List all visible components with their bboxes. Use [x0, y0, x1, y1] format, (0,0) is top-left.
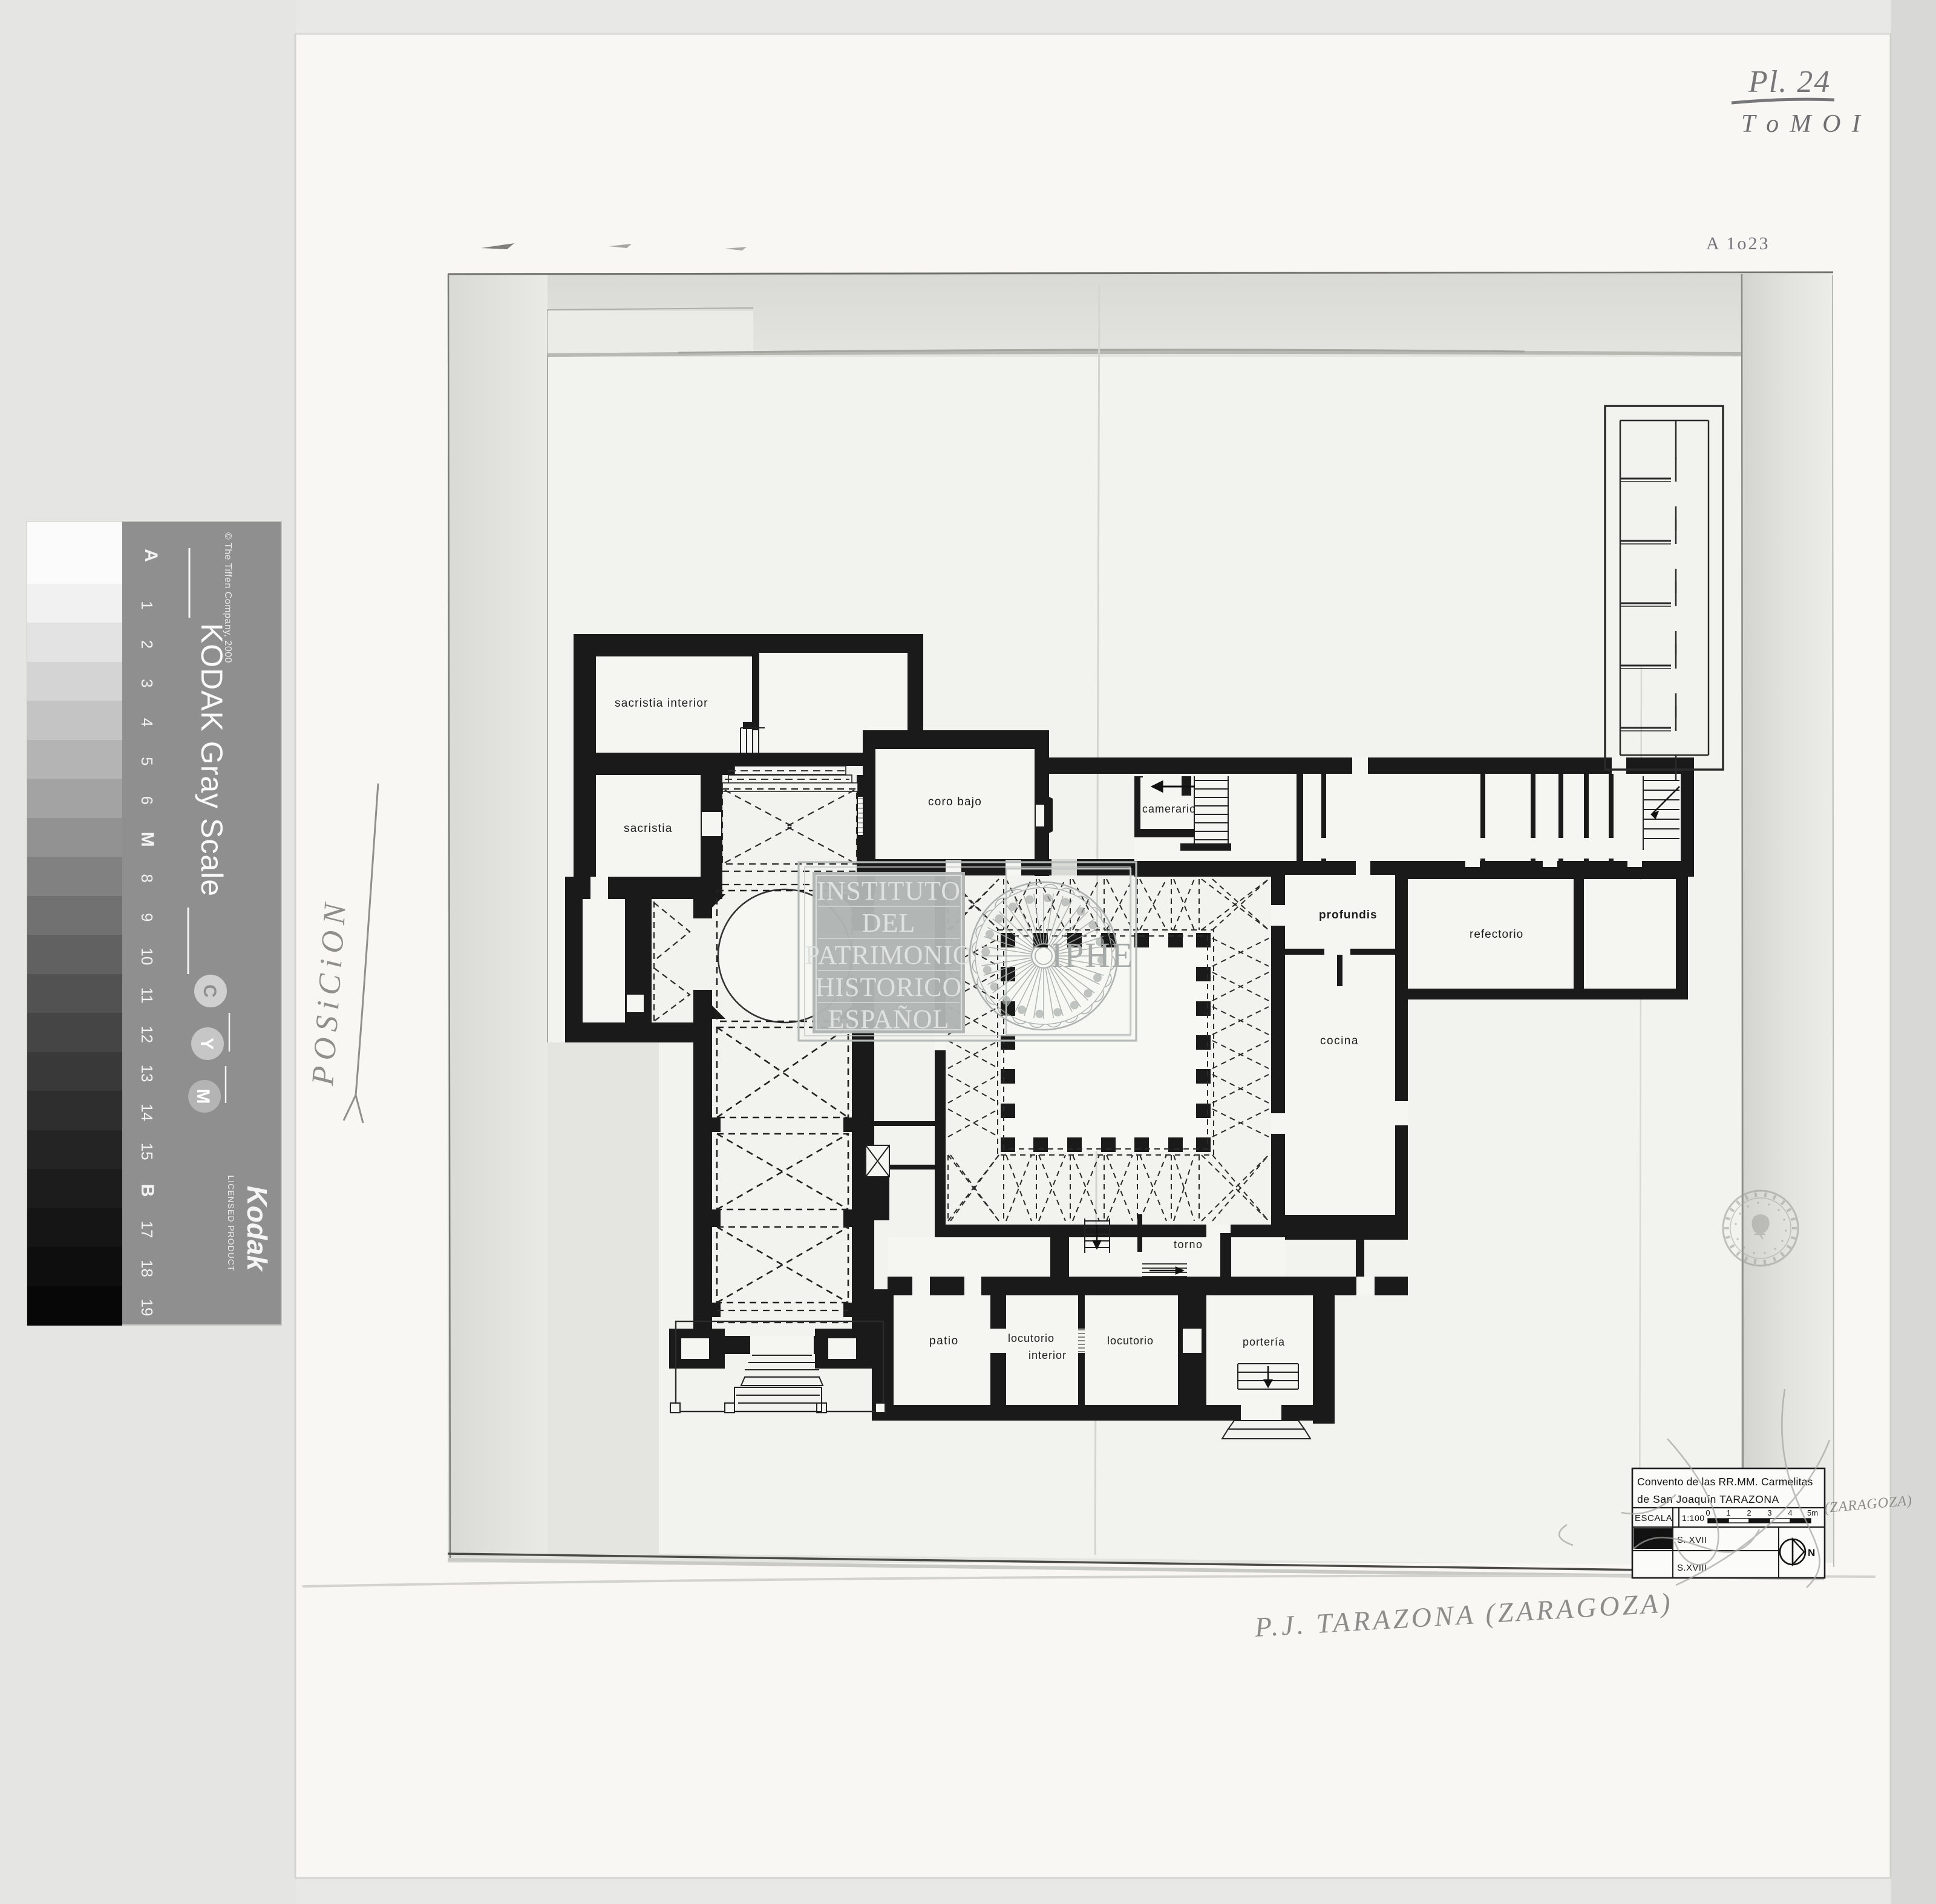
- svg-text:2: 2: [1747, 1508, 1751, 1517]
- svg-text:refectorio: refectorio: [1470, 928, 1523, 941]
- svg-text:4: 4: [138, 718, 156, 727]
- svg-text:N: N: [1808, 1547, 1815, 1559]
- svg-text:de San Joaquín TARAZONA: de San Joaquín TARAZONA: [1637, 1493, 1779, 1505]
- svg-text:HISTORICO: HISTORICO: [816, 972, 963, 1002]
- svg-text:A 1o23: A 1o23: [1706, 234, 1770, 254]
- svg-text:10: 10: [138, 947, 156, 965]
- svg-text:PATRIMONIO: PATRIMONIO: [805, 940, 972, 970]
- svg-text:LICENSED PRODUCT: LICENSED PRODUCT: [226, 1175, 236, 1271]
- svg-text:C: C: [200, 984, 220, 998]
- svg-text:coro bajo: coro bajo: [928, 796, 982, 808]
- svg-text:1: 1: [138, 601, 156, 609]
- svg-text:8: 8: [138, 874, 156, 883]
- svg-text:14: 14: [138, 1104, 156, 1121]
- svg-text:IPHE: IPHE: [1051, 935, 1134, 975]
- svg-text:© The Tiffen Company, 2000: © The Tiffen Company, 2000: [223, 532, 233, 663]
- svg-text:cocina: cocina: [1320, 1035, 1359, 1047]
- svg-text:4: 4: [1788, 1508, 1792, 1517]
- svg-text:1:100: 1:100: [1682, 1513, 1705, 1523]
- svg-text:5: 5: [138, 757, 156, 765]
- svg-text:M: M: [193, 1089, 213, 1104]
- svg-text:B: B: [137, 1184, 157, 1197]
- svg-text:Pl. 24: Pl. 24: [1748, 65, 1831, 99]
- svg-text:13: 13: [138, 1065, 156, 1082]
- svg-text:2: 2: [138, 640, 156, 649]
- svg-text:Y: Y: [197, 1038, 217, 1050]
- svg-text:1: 1: [1726, 1508, 1730, 1517]
- svg-text:A: A: [141, 549, 161, 562]
- svg-text:locutorio: locutorio: [1008, 1332, 1055, 1344]
- svg-text:INSTITUTO: INSTITUTO: [817, 876, 961, 906]
- svg-text:patio: patio: [929, 1335, 959, 1347]
- svg-text:3: 3: [1767, 1508, 1771, 1517]
- svg-text:15: 15: [138, 1143, 156, 1160]
- svg-text:6: 6: [138, 796, 156, 805]
- svg-text:T o M O I: T o M O I: [1741, 110, 1863, 138]
- svg-text:Kodak: Kodak: [241, 1186, 273, 1272]
- svg-text:ESPAÑOL: ESPAÑOL: [828, 1004, 950, 1034]
- svg-text:12: 12: [138, 1026, 156, 1043]
- svg-text:sacristia: sacristia: [624, 822, 672, 835]
- svg-text:5m: 5m: [1807, 1508, 1818, 1517]
- svg-text:19: 19: [138, 1299, 156, 1317]
- svg-text:ESCALA: ESCALA: [1635, 1513, 1672, 1523]
- svg-text:17: 17: [138, 1221, 156, 1238]
- svg-text:0: 0: [1705, 1508, 1710, 1517]
- svg-text:18: 18: [138, 1260, 156, 1277]
- svg-text:M: M: [137, 832, 157, 847]
- svg-text:locutorio: locutorio: [1107, 1335, 1154, 1347]
- svg-text:portería: portería: [1243, 1336, 1285, 1348]
- svg-text:interior: interior: [1028, 1349, 1067, 1361]
- svg-text:DEL: DEL: [862, 908, 916, 938]
- svg-text:sacristia interior: sacristia interior: [615, 697, 708, 710]
- svg-text:11: 11: [138, 987, 156, 1004]
- svg-text:9: 9: [138, 913, 156, 921]
- svg-text:torno: torno: [1174, 1238, 1203, 1251]
- svg-text:Convento de las RR.MM. Carmeli: Convento de las RR.MM. Carmelitas: [1637, 1476, 1813, 1488]
- svg-text:profundis: profundis: [1319, 909, 1378, 921]
- svg-text:3: 3: [138, 679, 156, 687]
- svg-text:camerario: camerario: [1142, 803, 1196, 815]
- svg-text:KODAK Gray Scale: KODAK Gray Scale: [195, 623, 229, 897]
